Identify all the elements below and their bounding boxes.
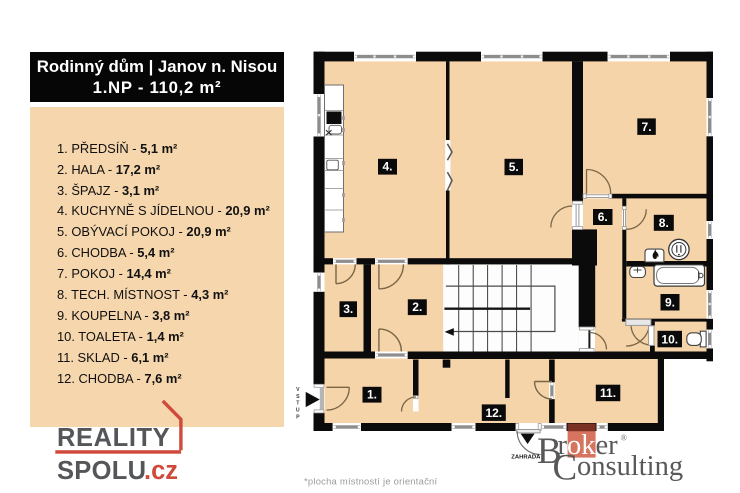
svg-text:*plocha místností je orientačn: *plocha místností je orientační <box>304 476 437 487</box>
svg-text:2.: 2. <box>412 300 422 314</box>
svg-text:REALITY: REALITY <box>57 424 170 452</box>
svg-text:V: V <box>296 387 300 393</box>
svg-text:onsulting: onsulting <box>577 451 683 482</box>
svg-text:8.: 8. <box>659 216 669 230</box>
svg-text:1.: 1. <box>367 388 377 402</box>
svg-text:T: T <box>296 401 300 407</box>
svg-text:12.: 12. <box>485 406 502 420</box>
svg-text:SPOLU: SPOLU <box>57 457 146 485</box>
svg-text:4.: 4. <box>382 160 392 174</box>
svg-text:9.: 9. <box>665 296 675 310</box>
svg-text:6.: 6. <box>598 210 608 224</box>
svg-text:11.: 11. <box>600 386 616 400</box>
svg-text:®: ® <box>621 433 628 443</box>
svg-text:C: C <box>553 448 578 489</box>
svg-text:P: P <box>296 414 300 420</box>
svg-text:.cz: .cz <box>144 457 178 485</box>
svg-text:7.: 7. <box>642 120 652 134</box>
svg-text:S: S <box>296 394 300 400</box>
svg-text:5.: 5. <box>509 160 519 174</box>
svg-text:U: U <box>296 407 300 413</box>
svg-text:3.: 3. <box>343 302 353 316</box>
svg-text:10.: 10. <box>661 332 678 346</box>
